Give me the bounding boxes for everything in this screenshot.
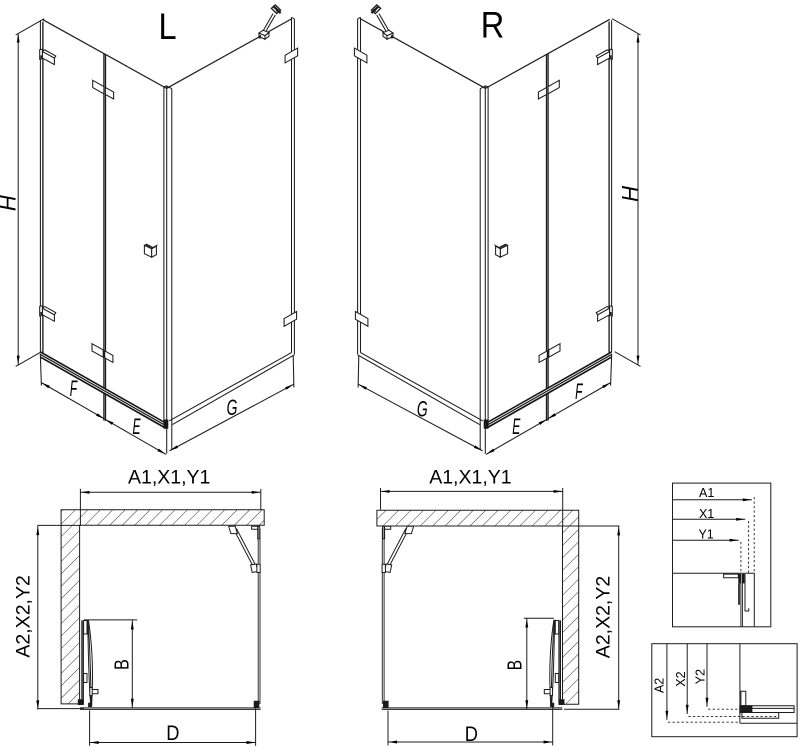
svg-text:X2: X2	[674, 671, 688, 686]
svg-text:D: D	[166, 722, 179, 746]
svg-text:B: B	[109, 659, 132, 670]
svg-text:R: R	[481, 5, 505, 46]
svg-text:L: L	[158, 6, 176, 47]
svg-text:Y1: Y1	[698, 528, 713, 542]
svg-text:B: B	[503, 660, 526, 670]
svg-text:H: H	[0, 195, 20, 211]
svg-text:F: F	[575, 379, 583, 404]
svg-text:X1: X1	[699, 507, 714, 521]
svg-text:A2: A2	[653, 678, 667, 693]
svg-text:A1,X1,Y1: A1,X1,Y1	[429, 467, 511, 489]
svg-text:A1,X1,Y1: A1,X1,Y1	[128, 467, 210, 489]
svg-text:H: H	[617, 185, 642, 201]
svg-text:A1: A1	[699, 486, 714, 500]
svg-text:E: E	[132, 414, 140, 439]
svg-text:G: G	[417, 396, 428, 421]
svg-text:A2,X2,Y2: A2,X2,Y2	[593, 576, 615, 658]
svg-text:A2,X2,Y2: A2,X2,Y2	[13, 575, 35, 657]
svg-text:D: D	[465, 723, 478, 747]
svg-text:F: F	[70, 376, 78, 401]
svg-text:Y2: Y2	[694, 669, 708, 684]
svg-text:G: G	[227, 395, 238, 420]
svg-text:E: E	[512, 414, 520, 439]
